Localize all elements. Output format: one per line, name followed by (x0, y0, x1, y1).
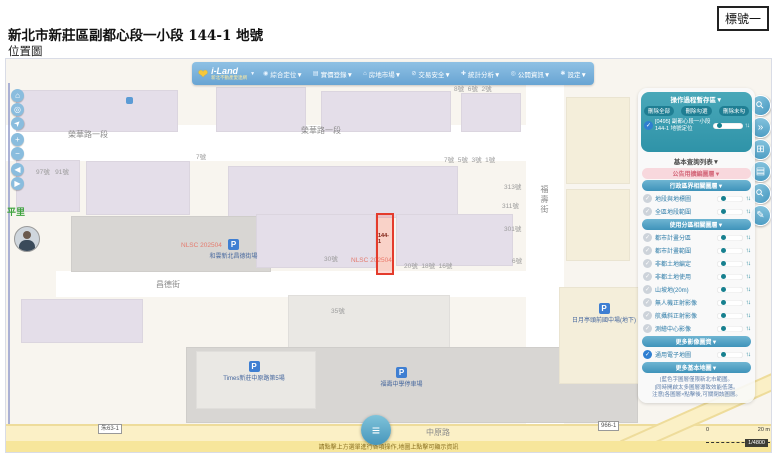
map-block (396, 214, 513, 266)
layer-checkbox[interactable]: ✓ (643, 233, 652, 242)
pan-left-button[interactable]: ◀ (11, 163, 24, 176)
house-number-label: 6號 (512, 255, 522, 265)
layer-row[interactable]: ✓ 基本查詢列表▼ ↑↓ (638, 154, 755, 167)
layer-label: 都市計畫分區 (655, 233, 714, 242)
scale-bar: 0 20 m 1/4800 (706, 427, 770, 443)
layer-label: 更多影像圖資▼ (676, 337, 718, 346)
layer-row[interactable]: ✓ 非都土地使用 ↑↓ (638, 270, 755, 283)
parking-icon: P (228, 239, 239, 250)
nav-menu-label: 統計分析▼ (468, 69, 500, 79)
road-number-badge: 朱63-1 (98, 424, 122, 434)
map-block (56, 271, 528, 297)
reorder-arrows[interactable]: ↑↓ (746, 273, 751, 280)
layer-row[interactable]: ✓ 使用分區相關圖層▼ ↑↓ (642, 219, 751, 230)
map-block (288, 295, 450, 351)
street-label: 榮華路一段 (68, 129, 108, 140)
parking-label: Times新莊中原路第5場 (223, 373, 284, 382)
street-label: 榮華路一段 (301, 125, 341, 136)
nav-menu-item[interactable]: ⊘ 交易安全▼ (411, 69, 450, 79)
reorder-arrows[interactable]: ↑↓ (745, 122, 750, 129)
sidebar-note: 注意|各圖層×點擊後,可關閉該圖層。 (638, 392, 755, 400)
house-number-label: 7號 5號 3號 1號 (444, 154, 495, 164)
layer-row[interactable]: ✓ 公告用擴編圖層▼ ↑↓ (642, 168, 751, 179)
layer-label: 都市計畫範圍 (655, 246, 714, 255)
parking-icon: P (396, 367, 407, 378)
layer-checkbox[interactable]: ✓ (643, 298, 652, 307)
poi-icon (126, 97, 133, 104)
parcel-number-label: 144-1 (378, 233, 392, 273)
check-icon: ✓ (645, 325, 650, 332)
parking-site: P 福壽中學停車場 (354, 367, 449, 388)
nav-menu-icon: ⌂ (363, 71, 367, 77)
street-label: 中原路 (426, 427, 450, 438)
nav-menu-icon: ✱ (560, 70, 565, 77)
parking-icon: P (249, 361, 260, 372)
layer-row[interactable]: ✓ 行政區界相關圖層▼ ↑↓ (642, 180, 751, 191)
layer-sidebar: 操作過程暫存區▼ 刪除全部刪除勾選刪除未勾 ✓ [0495] 副都心段一小段14… (638, 88, 755, 403)
house-number-label: 97號 91號 (36, 166, 69, 176)
delete-button[interactable]: 刪除未勾 (719, 106, 749, 116)
avatar-head (23, 231, 31, 239)
item-checkbox[interactable]: ✓ (644, 121, 653, 130)
parking-label: 日月亭頭前國中場(地下) (572, 315, 636, 324)
zoom-in-button[interactable]: + (11, 133, 24, 146)
reorder-arrows[interactable]: ↑↓ (746, 351, 751, 358)
scale-distance-label: 20 m (758, 427, 770, 433)
check-icon: ✓ (645, 286, 650, 293)
house-number-label: 20號 18號 16號 (404, 260, 452, 270)
nav-menu-item[interactable]: ✚ 統計分析▼ (461, 69, 500, 79)
map-block (461, 93, 521, 132)
map-boundary-line (8, 83, 10, 443)
house-number-label: 301號 (504, 223, 521, 233)
parking-site: P Times新莊中原路第5場 (194, 361, 314, 382)
layer-label: 地段與地標圖 (655, 194, 714, 203)
page-subtitle: 位置圖 (8, 43, 43, 59)
map-block (86, 161, 190, 215)
reorder-arrows[interactable]: ↑↓ (746, 325, 751, 332)
district-label: 平里 (7, 205, 25, 218)
layer-row[interactable]: ✓ 通用電子地圖 ↑↓ (638, 348, 755, 361)
opacity-slider[interactable] (717, 300, 743, 306)
opacity-slider[interactable] (713, 123, 743, 129)
street-label: 福壽街 (539, 185, 550, 215)
nav-menu-label: 設定▼ (567, 69, 586, 79)
reorder-arrows[interactable]: ↑↓ (746, 312, 751, 319)
layer-row[interactable]: ✓ 無人機正射影像 ↑↓ (638, 296, 755, 309)
nav-menu-item[interactable]: ◎ 公開資訊▼ (511, 69, 551, 79)
nav-menu-item[interactable]: ✱ 設定▼ (560, 69, 586, 79)
map-block (559, 287, 639, 384)
brand-subtitle: 新北不動產愛連網 (211, 76, 247, 81)
map-block (566, 189, 630, 261)
layer-label: 無人機正射影像 (655, 298, 714, 307)
layer-row[interactable]: ✓ 山坡地(20m) ↑↓ (638, 283, 755, 296)
house-number-label: 35號 (331, 305, 345, 315)
check-icon: ✓ (645, 195, 650, 202)
layer-label: 測繪中心影像 (655, 324, 714, 333)
layer-label: 非都土地編定 (655, 259, 714, 268)
layer-row[interactable]: ✓ 非都土地編定 ↑↓ (638, 257, 755, 270)
scale-ratio-badge: 1/4800 (745, 439, 768, 447)
parking-icon: P (599, 303, 610, 314)
layer-row[interactable]: ✓ 航攝斜正射影像 ↑↓ (638, 309, 755, 322)
layer-label: 航攝斜正射影像 (655, 311, 714, 320)
layer-label: 更多基本地圖▼ (676, 363, 718, 372)
home-button[interactable]: ⌂ (11, 89, 24, 102)
parking-label: 福壽中學停車場 (380, 379, 422, 388)
opacity-slider[interactable] (717, 352, 743, 358)
map-block (228, 166, 458, 218)
map-attribution: 請點擊上方選單進行各項操作,地圖上點擊可顯示資訊 (6, 441, 771, 452)
road-number-badge: 966-1 (598, 421, 619, 431)
map-canvas[interactable]: 請點擊上方選單進行各項操作,地圖上點擊可顯示資訊 榮華路一段榮華路一段福壽街昌德… (5, 58, 772, 453)
layer-row[interactable]: ✓ 測繪中心影像 ↑↓ (638, 322, 755, 335)
scale-zero-label: 0 (706, 427, 709, 433)
layer-row[interactable]: ✓ 地段與地標圖 ↑↓ (638, 192, 755, 205)
check-icon: ✓ (645, 260, 650, 267)
page: 標號一 新北市新莊區副都心段一小段 144-1 地號 位置圖 請點擊上方選單進行… (0, 0, 775, 461)
check-icon: ✓ (645, 312, 650, 319)
house-number-label: 313號 (504, 181, 521, 191)
layer-label: 山坡地(20m) (655, 285, 714, 294)
reorder-arrows[interactable]: ↑↓ (746, 286, 751, 293)
delete-button[interactable]: 刪除全部 (644, 106, 674, 116)
layer-checkbox[interactable]: ✓ (643, 324, 652, 333)
opacity-slider[interactable] (717, 209, 743, 215)
heart-logo-icon: ❤ (198, 67, 208, 81)
check-icon: ✓ (646, 122, 651, 129)
opacity-slider[interactable] (717, 235, 743, 241)
layer-checkbox[interactable]: ✓ (643, 194, 652, 203)
layer-row[interactable]: ✓ 更多基本地圖▼ ↑↓ (642, 362, 751, 373)
hamburger-icon: ≡ (372, 422, 380, 438)
reorder-arrows[interactable]: ↑↓ (746, 208, 751, 215)
layer-label: 行政區界相關圖層▼ (670, 181, 724, 190)
temp-item: ✓ [0495] 副都心段一小段144-1 地號定位 ↑↓ (644, 119, 749, 133)
layer-checkbox[interactable]: ✓ (643, 272, 652, 281)
pan-right-button[interactable]: ▶ (11, 177, 24, 190)
opacity-slider[interactable] (717, 261, 743, 267)
layer-checkbox[interactable]: ✓ (643, 246, 652, 255)
temp-panel-title[interactable]: 操作過程暫存區▼ (644, 94, 749, 104)
zoom-out-button[interactable]: − (11, 147, 24, 160)
nav-menu-label: 實價登錄▼ (321, 69, 353, 79)
layer-label: 全區地段範圍 (655, 207, 714, 216)
check-icon: ✓ (645, 273, 650, 280)
layer-row[interactable]: ✓ 更多影像圖資▼ ↑↓ (642, 336, 751, 347)
map-block (216, 87, 306, 132)
opacity-slider[interactable] (717, 313, 743, 319)
menu-fab-button[interactable]: ≡ (361, 415, 391, 445)
temp-storage-panel: 操作過程暫存區▼ 刪除全部刪除勾選刪除未勾 ✓ [0495] 副都心段一小段14… (641, 92, 752, 152)
nav-menu-icon: ▤ (313, 70, 319, 77)
check-icon: ✓ (645, 208, 650, 215)
layer-row[interactable]: ✓ 全區地段範圍 ↑↓ (638, 205, 755, 218)
nav-menu-label: 交易安全▼ (418, 69, 450, 79)
nav-menu-label: 房地市場▼ (369, 69, 401, 79)
check-icon: ✓ (645, 234, 650, 241)
temp-item-label: [0495] 副都心段一小段144-1 地號定位 (655, 119, 711, 133)
nav-menu-icon: ⊘ (411, 70, 416, 77)
layer-label: 非都土地使用 (655, 272, 714, 281)
sidebar-note: |藍色字圖層僅限新北市範圍。 (638, 377, 755, 385)
app-navbar: ❤ i-Land 新北不動產愛連網 ▼ ◉ 綜合定位▼ ▤ 實價登錄▼ ⌂ 房地… (192, 62, 594, 85)
locate-button[interactable]: ◎ (11, 103, 24, 116)
nav-menu-item[interactable]: ⌂ 房地市場▼ (363, 69, 401, 79)
reorder-arrows[interactable]: ↑↓ (746, 234, 751, 241)
opacity-slider[interactable] (717, 196, 743, 202)
street-label: 昌德街 (156, 279, 180, 290)
opacity-slider[interactable] (717, 287, 743, 293)
parking-site: P 和雲新北昌德街場 (186, 239, 281, 260)
map-block (16, 90, 178, 132)
nav-menu-icon: ✚ (461, 70, 466, 77)
avatar-body (19, 240, 35, 252)
reorder-arrows[interactable]: ↑↓ (746, 260, 751, 267)
layer-checkbox[interactable]: ✓ (643, 285, 652, 294)
sheet-tag: 標號一 (717, 6, 769, 31)
nav-menu-label: 綜合定位▼ (270, 69, 302, 79)
reorder-arrows[interactable]: ↑↓ (746, 247, 751, 254)
layer-checkbox[interactable]: ✓ (643, 207, 652, 216)
reorder-arrows[interactable]: ↑↓ (746, 299, 751, 306)
layer-row[interactable]: ✓ 都市計畫分區 ↑↓ (638, 231, 755, 244)
house-number-label: 7號 (196, 151, 206, 161)
logo-caret-icon[interactable]: ▼ (250, 71, 255, 77)
layer-label: 使用分區相關圖層▼ (670, 220, 724, 229)
opacity-slider[interactable] (717, 274, 743, 280)
nav-menu-item[interactable]: ▤ 實價登錄▼ (313, 69, 353, 79)
reorder-arrows[interactable]: ↑↓ (746, 195, 751, 202)
opacity-slider[interactable] (717, 326, 743, 332)
check-icon: ✓ (645, 299, 650, 306)
nav-menu-icon: ◉ (263, 70, 268, 77)
page-title: 新北市新莊區副都心段一小段 144-1 地號 (8, 24, 263, 44)
layer-label: 公告用擴編圖層▼ (673, 169, 721, 178)
nav-menu-label: 公開資訊▼ (518, 69, 550, 79)
layer-label: 通用電子地圖 (655, 350, 714, 359)
layer-label: 基本查詢列表▼ (674, 156, 719, 166)
app-logo[interactable]: ❤ i-Land 新北不動產愛連網 ▼ (198, 67, 255, 81)
house-number-label: 311號 (502, 200, 519, 210)
house-number-label: 30號 (324, 253, 338, 263)
delete-button[interactable]: 刪除勾選 (681, 106, 711, 116)
layer-checkbox[interactable]: ✓ (643, 311, 652, 320)
map-block (566, 97, 630, 184)
layer-checkbox[interactable]: ✓ (643, 350, 652, 359)
parking-label: 和雲新北昌德街場 (209, 251, 257, 260)
highlighted-parcel-144-1[interactable]: 144-1 (376, 213, 394, 275)
streetview-avatar[interactable] (14, 226, 40, 252)
opacity-slider[interactable] (717, 248, 743, 254)
layer-checkbox[interactable]: ✓ (643, 259, 652, 268)
layer-row[interactable]: ✓ 都市計畫範圍 ↑↓ (638, 244, 755, 257)
nav-menu-item[interactable]: ◉ 綜合定位▼ (263, 69, 303, 79)
nav-menu-icon: ◎ (511, 70, 516, 77)
check-icon: ✓ (645, 351, 650, 358)
check-icon: ✓ (645, 247, 650, 254)
map-block (21, 299, 143, 343)
